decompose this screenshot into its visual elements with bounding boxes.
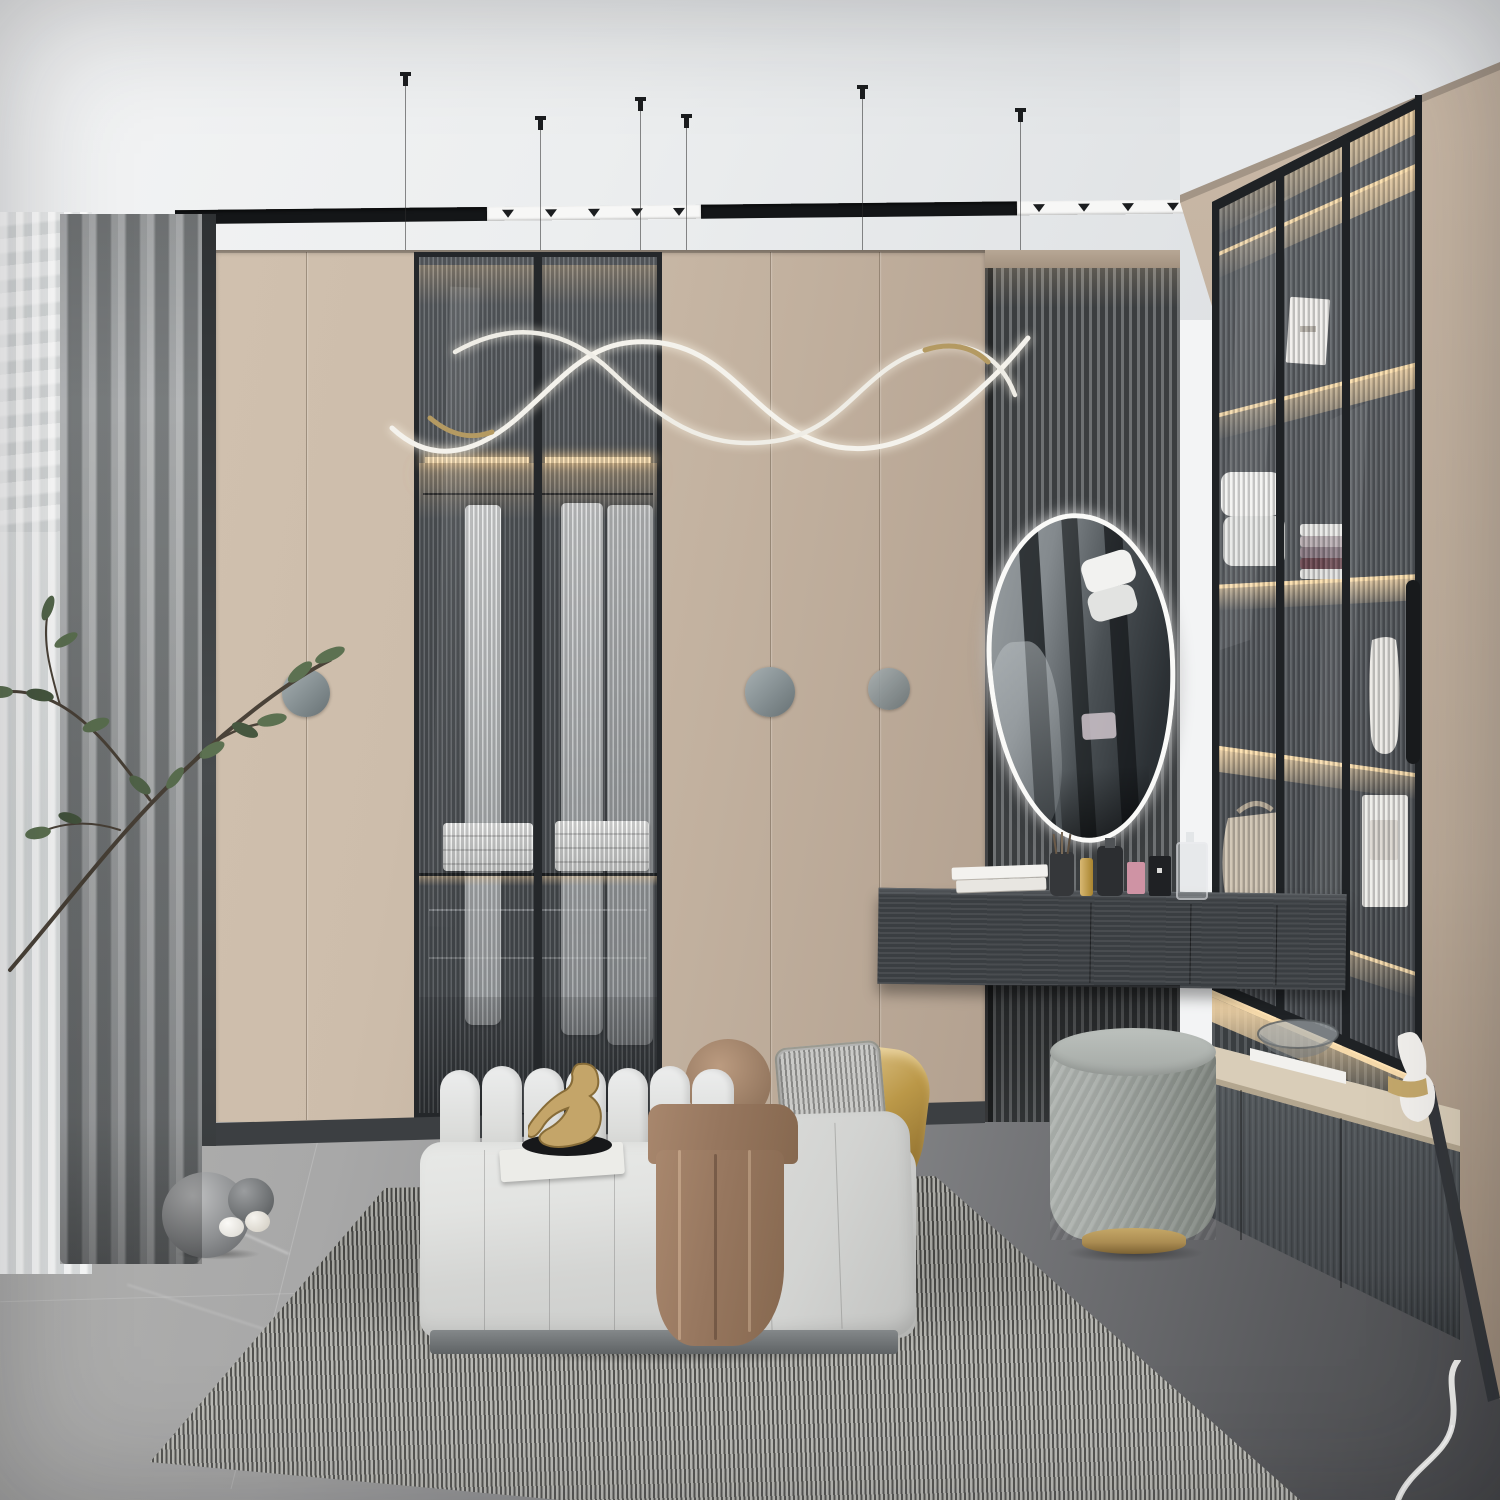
pendant-mount bbox=[638, 97, 643, 111]
book bbox=[956, 877, 1046, 892]
seat-channel bbox=[614, 1150, 615, 1334]
round-handle bbox=[868, 668, 910, 710]
black-box bbox=[1149, 856, 1171, 896]
spot-icon bbox=[673, 208, 685, 216]
pouf-top bbox=[1050, 1028, 1216, 1076]
book-stack bbox=[952, 864, 1049, 893]
pendant-mount bbox=[684, 114, 689, 128]
grey-curtain bbox=[60, 214, 202, 1264]
pink-box bbox=[1127, 862, 1145, 894]
track-spot-segment bbox=[487, 205, 701, 221]
drawer-seam bbox=[1275, 905, 1277, 985]
pendant-mount bbox=[403, 72, 408, 86]
spot-icon bbox=[1167, 203, 1179, 211]
throw-blanket-drape bbox=[656, 1150, 784, 1346]
vanity-desk bbox=[877, 888, 1346, 991]
stone-egg bbox=[245, 1211, 270, 1232]
gold-perfume bbox=[1080, 858, 1093, 896]
stone-egg bbox=[219, 1217, 244, 1237]
ribbon-gold-segment bbox=[430, 418, 492, 436]
ribbon-gold-segment bbox=[925, 346, 988, 362]
spot-icon bbox=[1078, 204, 1090, 212]
blanket-fold bbox=[714, 1154, 717, 1340]
pouf-body bbox=[1050, 1050, 1216, 1240]
seat-channel bbox=[484, 1150, 485, 1330]
pendant-mount bbox=[538, 116, 543, 130]
alcove-soffit bbox=[985, 250, 1180, 268]
spot-icon bbox=[1033, 204, 1045, 212]
gold-figure-sculpture bbox=[528, 1058, 612, 1150]
base-door-seam bbox=[1240, 1090, 1242, 1240]
base-door-seam bbox=[1340, 1118, 1342, 1288]
black-box-logo bbox=[1157, 868, 1162, 873]
round-handle bbox=[745, 667, 795, 717]
pendant-mount bbox=[1018, 108, 1023, 122]
blanket-fold bbox=[748, 1150, 751, 1332]
drawer-seam bbox=[1089, 903, 1091, 983]
decanter-stopper bbox=[1186, 832, 1194, 842]
cushion-seam bbox=[834, 1123, 842, 1329]
brush-cup bbox=[1050, 852, 1074, 896]
makeup-brush bbox=[1061, 832, 1063, 854]
spot-icon bbox=[1122, 203, 1134, 211]
ribbon-chandelier bbox=[370, 300, 1050, 490]
display-cabinet-wall bbox=[1180, 0, 1500, 1500]
mirror-reflected-stack bbox=[1081, 712, 1117, 740]
dark-flask bbox=[1097, 846, 1123, 896]
spot-icon bbox=[545, 209, 557, 217]
glass-decanter bbox=[1176, 842, 1208, 900]
drawer-seam bbox=[1189, 904, 1191, 984]
walk-in-closet-render bbox=[0, 0, 1500, 1500]
flask-cap bbox=[1105, 838, 1115, 848]
spot-icon bbox=[588, 209, 600, 217]
bench-plinth bbox=[430, 1330, 898, 1354]
blanket-fold bbox=[678, 1150, 681, 1340]
pendant-mount bbox=[860, 85, 865, 99]
mirror-bottom-shadow bbox=[1059, 764, 1153, 839]
spot-icon bbox=[502, 210, 514, 218]
pouf-brass-base bbox=[1082, 1228, 1186, 1254]
cabinet-door-handle bbox=[1406, 580, 1420, 764]
